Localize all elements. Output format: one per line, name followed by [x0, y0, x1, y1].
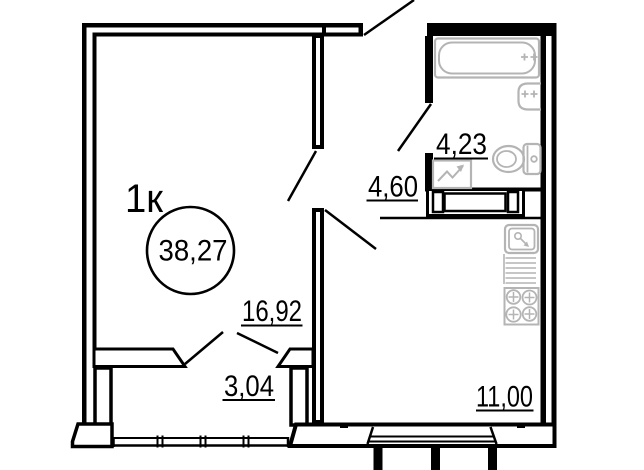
bathtub-outline [435, 39, 539, 78]
bathroom-left-wall-upper [427, 38, 431, 101]
kitchen-fixtures [504, 225, 539, 325]
sink-drain [515, 233, 521, 239]
total-area-label: 38,27 [159, 235, 228, 268]
living-hall-wall-lower [314, 210, 322, 422]
stove-icon [505, 288, 539, 325]
living-hall-wall-upper [314, 36, 322, 147]
balcony-door-leaf-left [185, 332, 223, 364]
drying-rack-icon [504, 254, 536, 284]
living-room-door-leaf-in [288, 151, 316, 201]
interior-walls [314, 36, 431, 422]
left-wall-outer-line [82, 23, 87, 425]
floor-plan: 1к 38,27 16,92 4,60 4,23 11,00 3,04 [0, 0, 644, 470]
doors [288, 0, 431, 249]
toilet-icon [493, 144, 541, 174]
hallway-area-label: 4,60 [368, 171, 418, 204]
vent-block-right-cell [508, 192, 518, 212]
washbasin-icon [519, 84, 542, 110]
floor-plan-drawing: 1к 38,27 16,92 4,60 4,23 11,00 3,04 [0, 0, 644, 470]
vent-block-left-cell [433, 192, 443, 212]
bathroom-left-wall-lower [427, 155, 431, 187]
balcony-structure [73, 332, 314, 448]
washbasin-outline [519, 84, 542, 110]
bathroom-door-leaf [398, 104, 431, 151]
washing-machine-icon [433, 161, 471, 189]
washbasin-taps [522, 91, 538, 98]
loggia-posts [374, 448, 498, 470]
living-room-area-label: 16,92 [242, 295, 302, 328]
toilet-bowl-inner [497, 151, 516, 167]
bathtub-icon [435, 39, 539, 78]
wall-tick-right [517, 423, 525, 428]
bathroom-fixtures [433, 39, 541, 189]
kitchen-area-label: 11,00 [476, 381, 533, 414]
labels: 1к 38,27 16,92 4,60 4,23 11,00 3,04 [125, 128, 534, 414]
loggia-post-2 [431, 448, 440, 470]
balcony-area-label: 3,04 [224, 370, 274, 403]
entrance-door-leaf [364, 0, 414, 35]
living-room-door-leaf-out [325, 210, 376, 249]
unit-type-label: 1к [125, 177, 163, 221]
kitchen-sink-icon [505, 225, 538, 253]
top-wall-outer-line [82, 23, 363, 28]
window-sill-right [278, 349, 313, 367]
kitchen-south-wall [290, 423, 555, 470]
top-wall-end-cap [359, 23, 364, 37]
drying-rack-lines [506, 258, 537, 283]
toilet-flush-button [531, 156, 537, 162]
balcony-door-leaf-right [237, 333, 278, 353]
bathroom-top-wall [427, 23, 557, 36]
right-wall-outer-line [552, 36, 557, 425]
balcony-pier-right [291, 368, 307, 425]
wall-tick-left [340, 423, 348, 428]
vent-block-middle-cell [445, 194, 506, 212]
bathtub-basin [439, 43, 535, 74]
vent-shaft-block [428, 190, 524, 216]
left-wall-inner-line [93, 33, 97, 349]
washing-machine-outline [433, 161, 471, 189]
kitchen-bottom-wall-box [290, 425, 555, 447]
balcony-corner-block [73, 424, 113, 447]
loggia-post-3 [488, 448, 497, 470]
balcony-glazing [113, 436, 289, 448]
balcony-pier-left [95, 368, 111, 425]
bathroom-area-label: 4,23 [436, 128, 487, 161]
window-sill-left [94, 349, 185, 367]
right-wall-inner-line [541, 36, 547, 423]
loggia-post-1 [374, 448, 383, 470]
